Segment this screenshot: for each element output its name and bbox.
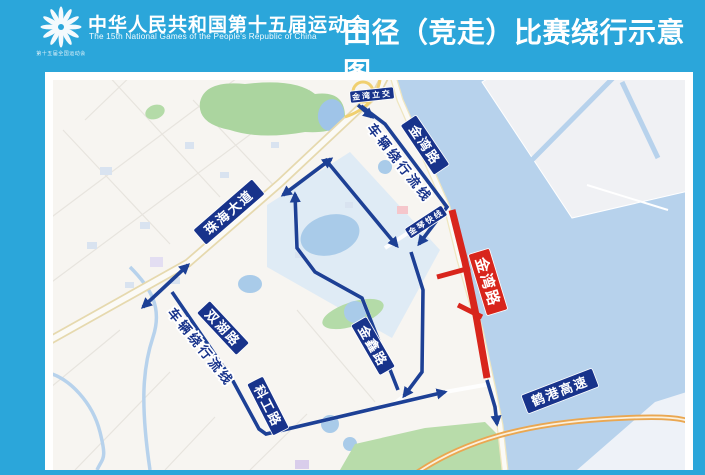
games-title-en: The 15th National Games of the People's … xyxy=(89,32,317,41)
poster-header: 第十五届全国运动会 中华人民共和国第十五届运动会 The 15th Nation… xyxy=(0,0,705,70)
detour-map: 车辆绕行流线车辆绕行流线珠海大道金湾路金湾立交金琴快线双湖路科工路金鑫路鹤港高速… xyxy=(45,72,693,470)
map-panel: 车辆绕行流线车辆绕行流线珠海大道金湾路金湾立交金琴快线双湖路科工路金鑫路鹤港高速… xyxy=(45,72,693,470)
games-emblem-icon xyxy=(40,5,82,49)
poster: { "header": { "emblem_caption": "第十五届全国运… xyxy=(0,0,705,470)
emblem-caption: 第十五届全国运动会 xyxy=(30,50,92,57)
